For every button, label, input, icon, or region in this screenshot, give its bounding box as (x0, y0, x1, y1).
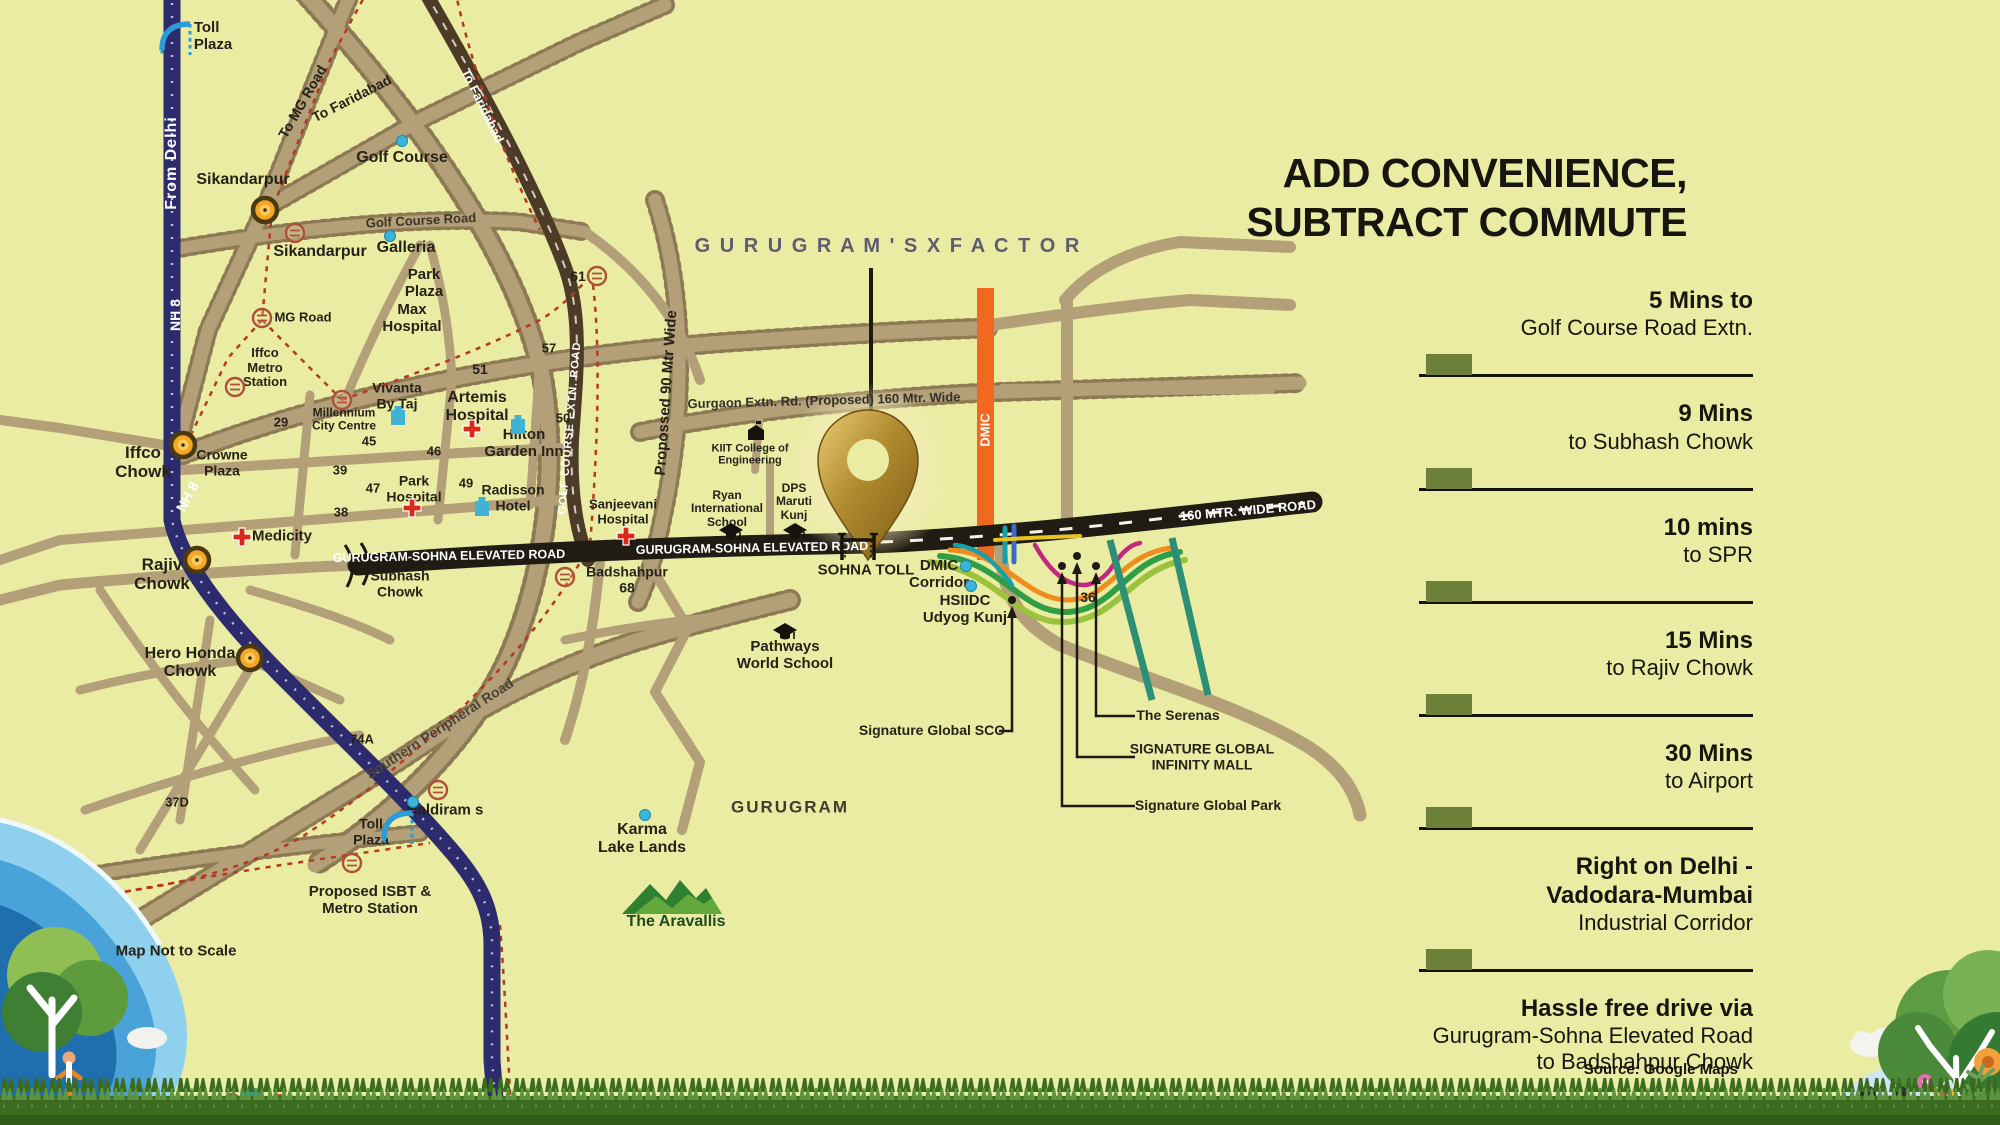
rajiv-chowk-dot (180, 543, 214, 577)
distance-bar (1419, 580, 1753, 604)
distance-bar-chip (1426, 581, 1472, 602)
sanjeevani-hospital: Sanjeevani Hospital (589, 497, 657, 526)
sikandarpur-2: Sikandarpur (273, 243, 366, 261)
artemis-hospital-icon (462, 419, 482, 439)
location-map-infographic: G U R U G R A M ' S X F A C T O RToll Pl… (0, 0, 2000, 1125)
hero-honda-chowk-dot (233, 641, 267, 675)
commute-item-line: Vadodara-Mumbai (1419, 882, 1753, 910)
sector-39: 39 (333, 464, 347, 479)
distance-bar-chip (1426, 694, 1472, 715)
nh8-a: NH 8 (168, 299, 184, 331)
commute-list: 5 Mins toGolf Course Road Extn.9 Minsto … (1419, 287, 1753, 1098)
sector-29: 29 (274, 416, 288, 431)
commute-item-line: to Subhash Chowk (1419, 429, 1753, 455)
iffco-chowk: Iffco Chowk (115, 443, 171, 481)
badshahpur-metro-icon (553, 565, 577, 589)
medicity: Medicity (252, 529, 312, 546)
commute-item-0: 5 Mins toGolf Course Road Extn. (1419, 287, 1753, 377)
sanjeevani-hospital-icon (616, 526, 636, 546)
toll-plaza-top-icon (152, 16, 200, 60)
commute-item-line: 30 Mins (1419, 740, 1753, 768)
commute-item-line: 9 Mins (1419, 400, 1753, 428)
dmic-band-label: DMIC (979, 413, 994, 446)
distance-bar (1419, 467, 1753, 491)
mg-road: MG Road (274, 311, 331, 326)
karma-dot (638, 808, 652, 822)
distance-bar (1419, 353, 1753, 377)
distance-bar-chip (1426, 807, 1472, 828)
subhash-chowk: Subhash Chowk (370, 568, 429, 599)
signature-global-sco: Signature Global SCO (859, 723, 1005, 739)
commute-item-line: Golf Course Road Extn. (1419, 315, 1753, 341)
commute-item-2: 10 minsto SPR (1419, 514, 1753, 604)
iffco-metro-icon (223, 375, 247, 399)
galleria-dot (383, 229, 397, 243)
distance-bar-chip (1426, 354, 1472, 375)
map-disclaimer: Map Not to Scale (116, 944, 237, 961)
commute-item-5: Right on Delhi -Vadodara-MumbaiIndustria… (1419, 853, 1753, 972)
gurugram-city: GURUGRAM (731, 797, 849, 816)
toll-plaza-bottom-icon (374, 805, 422, 849)
distance-bar (1419, 806, 1753, 830)
dmic-dot-2-icon (964, 579, 978, 593)
xfactor-title: G U R U G R A M ' S X F A C T O R (695, 235, 1082, 257)
haldiram-metro-icon (426, 778, 450, 802)
radisson-hotel-icon (473, 497, 491, 517)
aravallis-hills-icon (620, 876, 724, 916)
sector-37d: 37D (165, 796, 189, 811)
sector-57: 57 (542, 342, 556, 357)
sector-36: 36 (1080, 590, 1096, 606)
distance-bar (1419, 948, 1753, 972)
panel-title-line2: SUBTRACT COMMUTE (1246, 198, 1687, 247)
kiit-college: KIIT College of Engineering (712, 443, 789, 468)
signature-global-park: Signature Global Park (1135, 798, 1281, 814)
source-credit: Source: Google Maps (1584, 1061, 1738, 1078)
commute-item-line: Industrial Corridor (1419, 910, 1753, 936)
sector-38: 38 (334, 506, 348, 521)
dps-maruti-kunj: DPS Maruti Kunj (776, 482, 812, 522)
the-serenas: The Serenas (1136, 708, 1219, 724)
commute-item-4: 30 Minsto Airport (1419, 740, 1753, 830)
commute-item-1: 9 Minsto Subhash Chowk (1419, 400, 1753, 490)
dps-school-icon (781, 521, 809, 543)
commute-item-line: Hassle free drive via (1419, 995, 1753, 1023)
mg-road-metro-icon (250, 306, 274, 330)
golf-course: Golf Course (356, 149, 448, 167)
sector-47: 47 (366, 482, 380, 497)
ryan-school-icon (717, 521, 745, 543)
park-hospital-icon (402, 498, 422, 518)
hsiidc-udyog-kunj: HSIIDC Udyog Kunj (923, 593, 1007, 627)
from-delhi: From Delhi (163, 116, 181, 210)
park-plaza: Park Plaza (405, 267, 443, 301)
sector61-metro-icon (585, 264, 609, 288)
hero-honda-chowk: Hero Honda Chowk (145, 645, 236, 681)
commute-item-line: to SPR (1419, 542, 1753, 568)
sector-49: 49 (459, 477, 473, 492)
sikandarpur-1: Sikandarpur (196, 171, 289, 189)
max-hospital: Max Hospital (382, 302, 441, 336)
pathways-world-school: Pathways World School (737, 639, 833, 673)
commute-item-line: 10 mins (1419, 514, 1753, 542)
distance-bar (1419, 693, 1753, 717)
panel-title: ADD CONVENIENCE, SUBTRACT COMMUTE (1246, 149, 1687, 247)
sikandarpur-metro-icon (283, 221, 307, 245)
commute-item-line: 15 Mins (1419, 627, 1753, 655)
commute-item-line: to Rajiv Chowk (1419, 655, 1753, 681)
sohna-toll-gate-icon (835, 528, 881, 566)
iffco-metro-station: Iffco Metro Station (243, 346, 287, 390)
hilton-hotel-icon (509, 415, 527, 435)
isbt-metro-icon (340, 851, 364, 875)
vivanta-hotel-icon (389, 406, 407, 426)
sector-74a: 74A (350, 733, 374, 748)
dmic-dot-1-icon (959, 559, 973, 573)
commute-item-line: to Airport (1419, 768, 1753, 794)
sector-61: 61 (570, 269, 586, 285)
iffco-chowk-dot (166, 428, 200, 462)
sector-46: 46 (427, 445, 441, 460)
commute-item-line: 5 Mins to (1419, 287, 1753, 315)
signature-global-infinity-mall: SIGNATURE GLOBAL INFINITY MALL (1130, 741, 1274, 772)
commute-item-3: 15 Minsto Rajiv Chowk (1419, 627, 1753, 717)
pathways-school-icon (771, 621, 799, 643)
millennium-metro-icon (330, 388, 354, 412)
proposed-isbt: Proposed ISBT & Metro Station (309, 884, 432, 918)
sector-51: 51 (472, 362, 488, 378)
panel-title-line1: ADD CONVENIENCE, (1246, 149, 1687, 198)
badshahpur-68: Badshahpur 68 (586, 564, 668, 595)
distance-bar-chip (1426, 949, 1472, 970)
golf-course-dot (395, 134, 409, 148)
sector-45: 45 (362, 435, 376, 450)
sikandarpur-chowk-dot (248, 193, 282, 227)
commute-item-line: Right on Delhi - (1419, 853, 1753, 881)
sector-50: 50 (556, 412, 570, 427)
commute-item-line: Gurugram-Sohna Elevated Road (1419, 1023, 1753, 1049)
karma-lake-lands: Karma Lake Lands (598, 821, 686, 857)
kiit-college-icon (744, 420, 768, 444)
crowne-plaza: Crowne Plaza (196, 447, 247, 478)
distance-bar-chip (1426, 468, 1472, 489)
medicity-hospital-icon (232, 527, 252, 547)
